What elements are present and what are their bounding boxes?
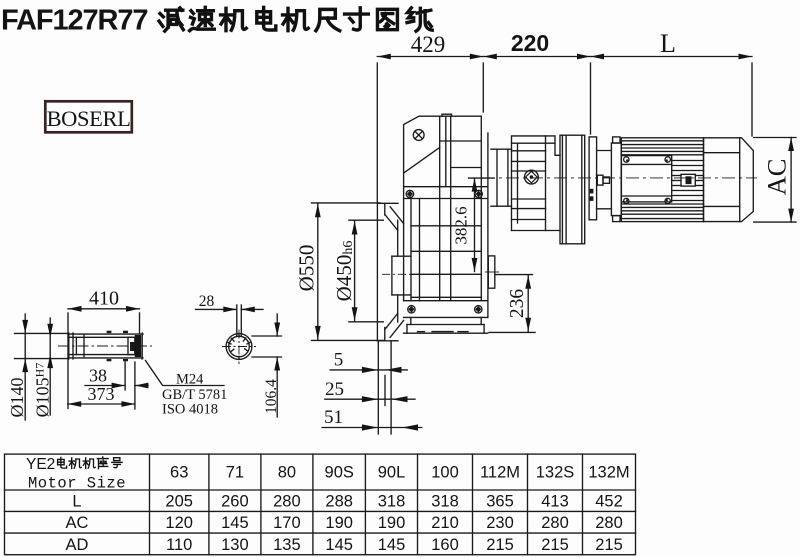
svg-text:132M: 132M bbox=[588, 464, 629, 482]
svg-text:205: 205 bbox=[165, 493, 193, 511]
svg-text:382.6: 382.6 bbox=[452, 206, 471, 244]
svg-text:YE2: YE2 bbox=[26, 456, 55, 473]
svg-text:L: L bbox=[660, 29, 676, 58]
svg-text:288: 288 bbox=[325, 493, 353, 511]
svg-text:Ø140: Ø140 bbox=[7, 378, 27, 418]
svg-text:AC: AC bbox=[66, 514, 89, 532]
svg-text:190: 190 bbox=[325, 514, 353, 532]
svg-text:135: 135 bbox=[273, 536, 301, 554]
svg-text:280: 280 bbox=[541, 514, 569, 532]
svg-text:Ø550: Ø550 bbox=[295, 245, 319, 292]
svg-text:ISO 4018: ISO 4018 bbox=[162, 402, 218, 418]
svg-text:FAF127R77: FAF127R77 bbox=[1, 5, 147, 37]
svg-text:373: 373 bbox=[88, 384, 115, 404]
svg-text:280: 280 bbox=[595, 514, 623, 532]
svg-text:51: 51 bbox=[324, 407, 343, 428]
svg-text:L: L bbox=[72, 493, 81, 511]
svg-text:280: 280 bbox=[273, 493, 301, 511]
svg-text:5: 5 bbox=[334, 350, 344, 371]
svg-text:236: 236 bbox=[507, 289, 528, 319]
svg-text:130: 130 bbox=[221, 536, 249, 554]
svg-text:215: 215 bbox=[595, 536, 623, 554]
svg-text:25: 25 bbox=[325, 379, 344, 400]
svg-text:28: 28 bbox=[199, 293, 215, 310]
svg-text:110: 110 bbox=[166, 536, 192, 554]
svg-text:BOSERL: BOSERL bbox=[47, 106, 131, 131]
svg-text:M24: M24 bbox=[176, 372, 204, 388]
svg-text:Motor Size: Motor Size bbox=[28, 475, 126, 493]
svg-text:230: 230 bbox=[486, 514, 514, 532]
svg-text:63: 63 bbox=[170, 464, 188, 482]
svg-text:145: 145 bbox=[378, 536, 406, 554]
svg-text:210: 210 bbox=[431, 514, 459, 532]
svg-text:429: 429 bbox=[411, 32, 446, 57]
svg-text:145: 145 bbox=[325, 536, 353, 554]
svg-text:215: 215 bbox=[486, 536, 514, 554]
svg-text:260: 260 bbox=[221, 493, 249, 511]
svg-text:38: 38 bbox=[89, 366, 107, 386]
svg-text:190: 190 bbox=[378, 514, 406, 532]
svg-text:318: 318 bbox=[431, 493, 459, 511]
svg-text:413: 413 bbox=[541, 493, 569, 511]
svg-text:90S: 90S bbox=[325, 464, 354, 482]
svg-text:100: 100 bbox=[431, 464, 459, 482]
svg-text:220: 220 bbox=[511, 30, 549, 56]
svg-text:AC: AC bbox=[762, 159, 792, 196]
svg-text:170: 170 bbox=[273, 514, 301, 532]
svg-text:112M: 112M bbox=[480, 464, 520, 482]
svg-text:452: 452 bbox=[595, 493, 623, 511]
svg-text:106.4: 106.4 bbox=[263, 379, 280, 414]
svg-text:132S: 132S bbox=[536, 464, 575, 482]
svg-text:215: 215 bbox=[541, 536, 569, 554]
svg-text:AD: AD bbox=[66, 536, 89, 554]
svg-text:120: 120 bbox=[165, 514, 193, 532]
svg-text:71: 71 bbox=[226, 464, 244, 482]
svg-text:90L: 90L bbox=[378, 464, 406, 482]
svg-text:80: 80 bbox=[278, 464, 296, 482]
svg-text:410: 410 bbox=[89, 288, 119, 310]
svg-text:365: 365 bbox=[486, 493, 514, 511]
svg-text:318: 318 bbox=[378, 493, 406, 511]
svg-text:145: 145 bbox=[221, 514, 249, 532]
svg-text:160: 160 bbox=[431, 536, 459, 554]
